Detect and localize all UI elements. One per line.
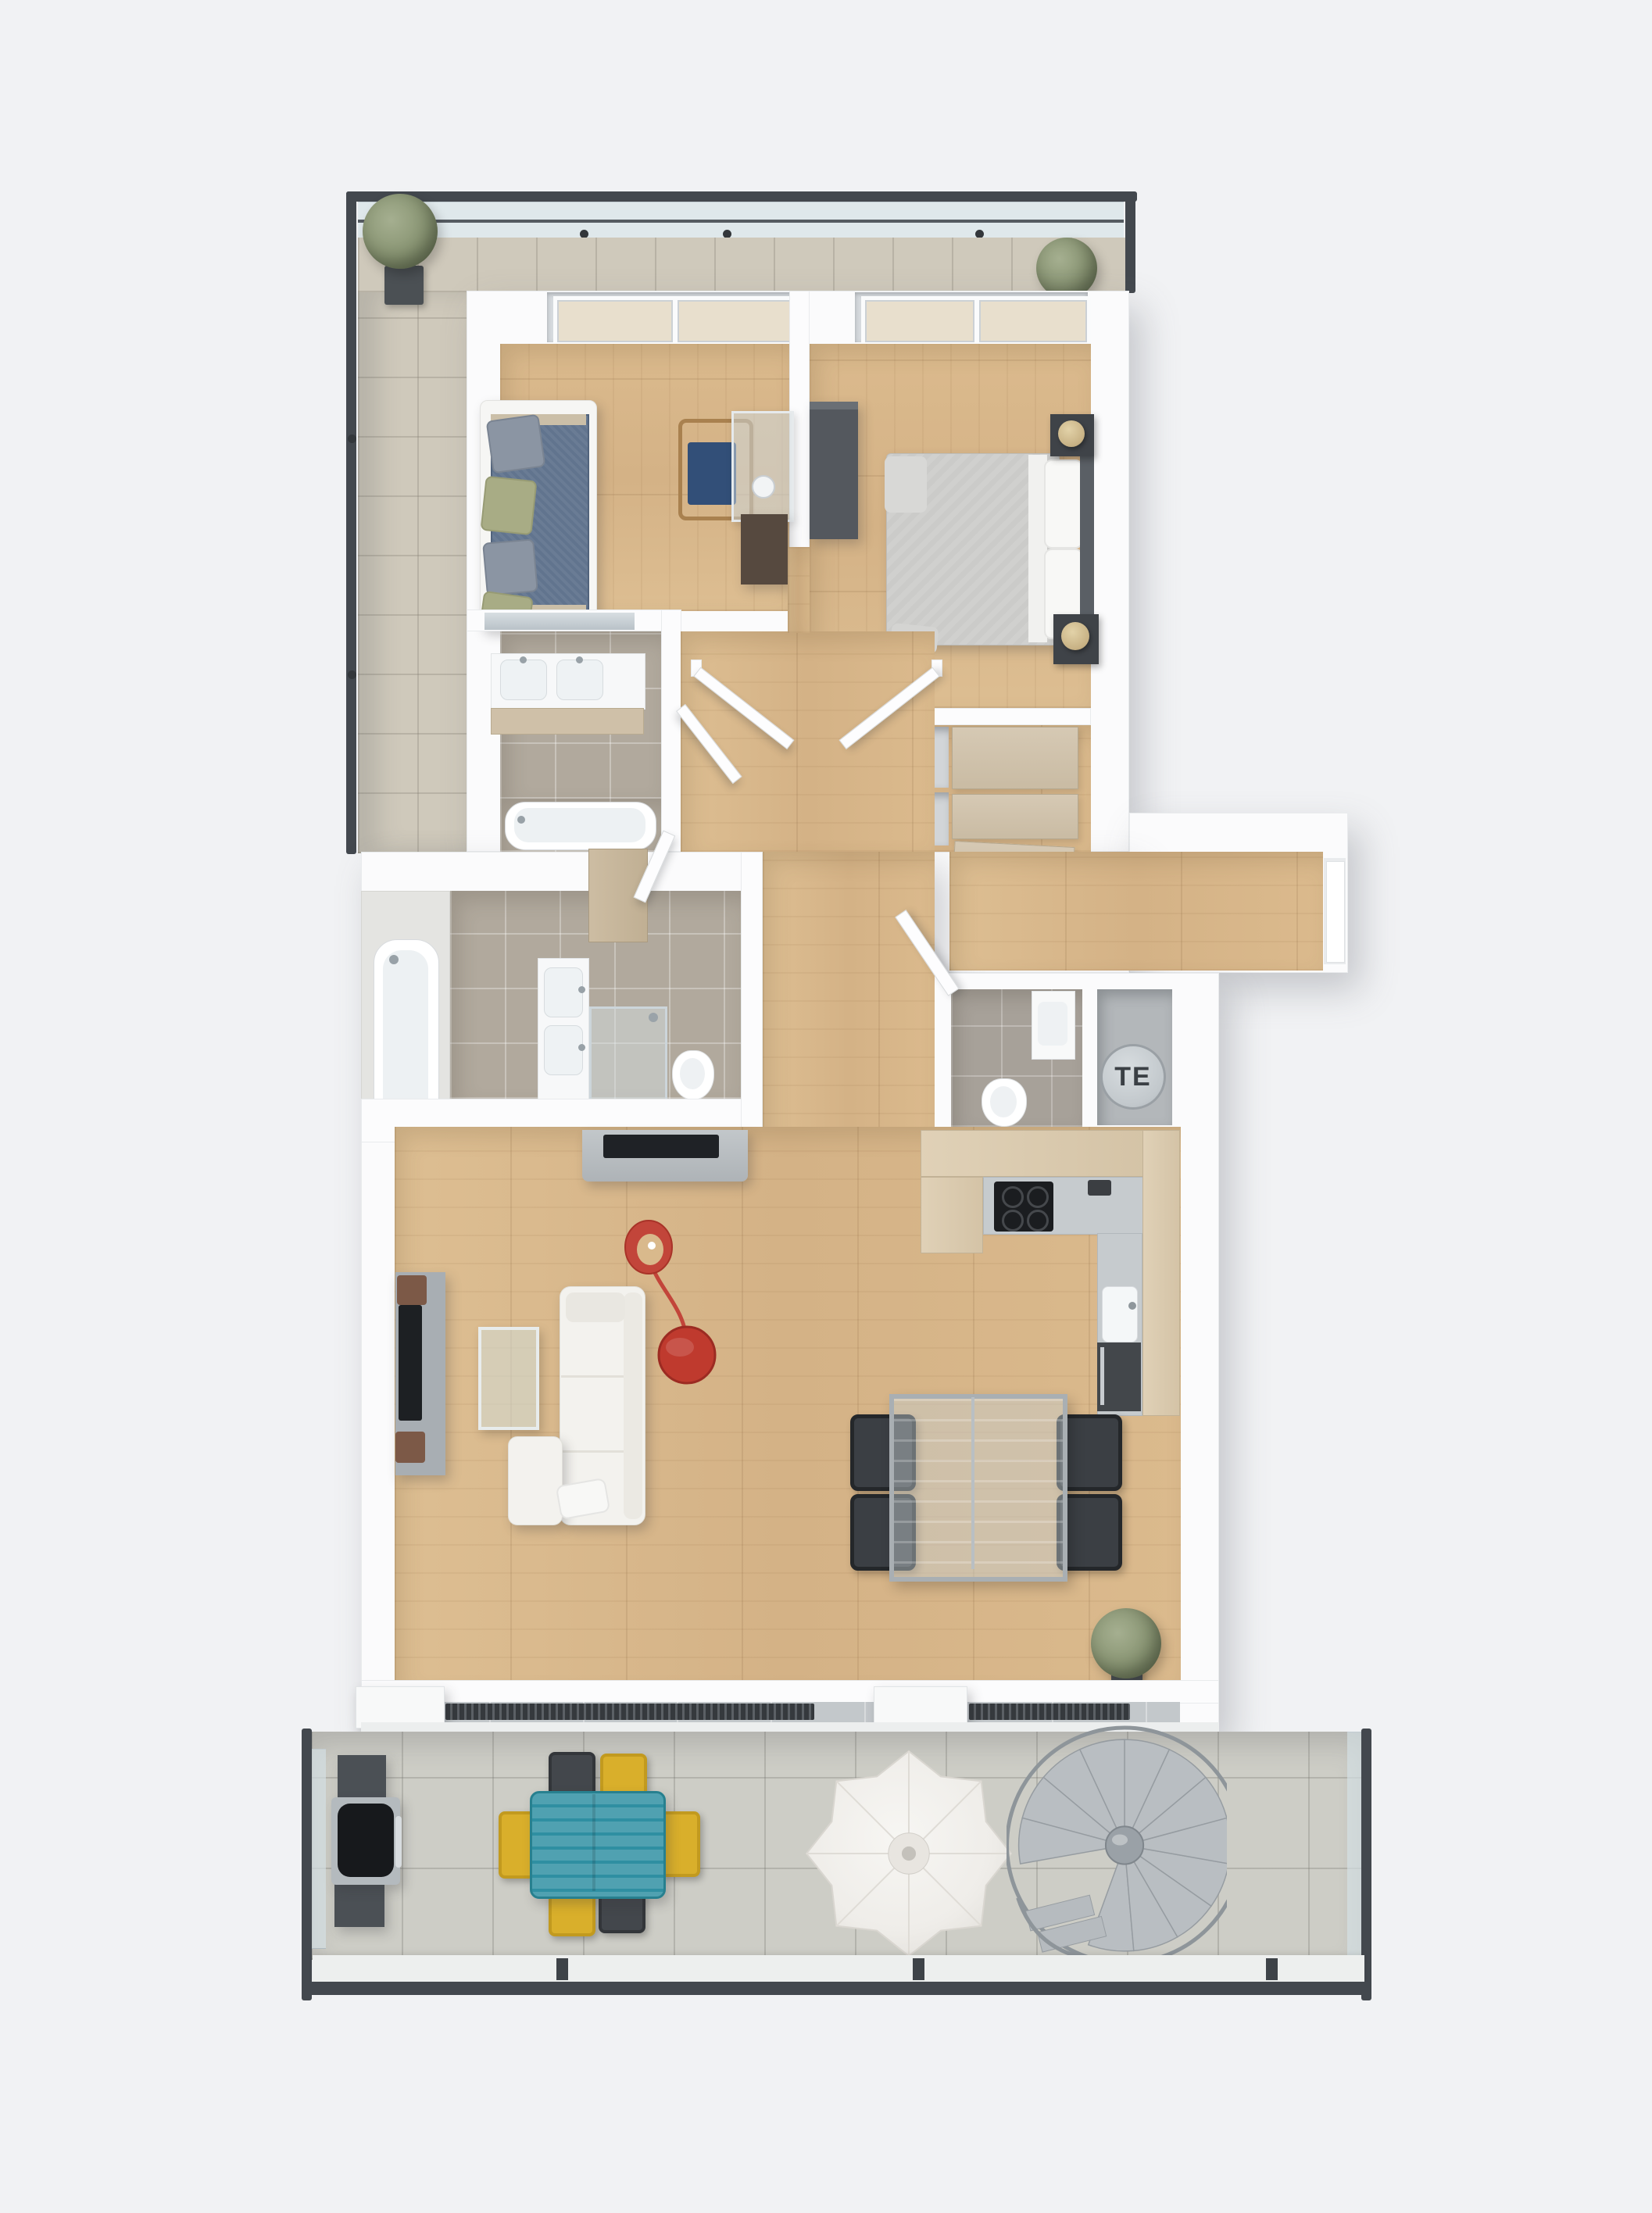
tub-faucet — [389, 955, 399, 964]
top-terrace-rail-bar — [358, 220, 1124, 223]
technical-shaft: TE — [1100, 1044, 1166, 1110]
sofa-chaise — [508, 1436, 563, 1525]
red-arc-floor-lamp — [611, 1214, 728, 1394]
outdoor-table — [530, 1791, 666, 1899]
bed-blanket-fold — [885, 456, 927, 513]
sink-basin — [544, 967, 583, 1017]
bbq-side-shelf — [334, 1882, 384, 1927]
top-terrace-railing — [346, 191, 1137, 202]
kitchen-base-cabinet — [921, 1177, 983, 1253]
vent-grille — [445, 1704, 814, 1720]
sink-basin — [556, 660, 603, 700]
glass-desk — [731, 411, 794, 522]
kitchen-utensil — [1088, 1180, 1111, 1196]
faucet — [578, 986, 585, 993]
tub-faucet — [517, 816, 525, 824]
faucet — [578, 1044, 585, 1051]
speaker — [397, 1275, 427, 1305]
oven-handle — [1100, 1347, 1104, 1405]
sofa-seam — [561, 1450, 624, 1453]
spiral-staircase — [1007, 1724, 1227, 1971]
planter-pot — [384, 266, 424, 305]
central-hall-floor — [763, 852, 935, 1142]
terrace-glass-left — [312, 1749, 326, 1949]
ensuite-bathtub-inner — [514, 808, 645, 842]
speaker — [395, 1432, 425, 1463]
table-lamp — [1061, 622, 1089, 650]
tv-flat — [603, 1135, 719, 1158]
railing-knob — [348, 434, 356, 443]
ensuite-mirror — [485, 613, 635, 630]
desk-lamp — [752, 475, 775, 499]
terrace-sill — [313, 1955, 1364, 1983]
bed-pillow — [1044, 459, 1083, 549]
kitchen-faucet — [1128, 1302, 1136, 1310]
vent-grille — [969, 1704, 1130, 1720]
outdoor-table-seam — [592, 1794, 595, 1891]
tv-on-sideboard — [399, 1305, 422, 1421]
top-terrace-railing-right — [1125, 191, 1135, 293]
cooktop-burner — [1002, 1186, 1024, 1208]
railing-post — [1266, 1958, 1278, 1980]
living-south-wall — [361, 1680, 1219, 1704]
cooktop-burner — [1027, 1186, 1049, 1208]
top-terrace-floor — [358, 238, 1125, 292]
potted-plant — [363, 194, 438, 269]
faucet — [520, 656, 527, 663]
table-lamp — [1058, 420, 1085, 447]
main-bathtub-inner — [383, 950, 428, 1122]
bbq-grill-lid — [338, 1804, 394, 1877]
cooktop-burner — [1027, 1210, 1049, 1232]
coffee-table — [478, 1327, 539, 1430]
side-balcony-railing — [346, 191, 356, 854]
desk-cabinet — [741, 514, 788, 585]
sliding-wardrobe — [952, 727, 1078, 789]
railing-knob — [348, 670, 356, 679]
bedroom-dresser — [810, 402, 858, 539]
side-balcony-floor — [358, 292, 467, 853]
hallway-floor — [681, 631, 935, 852]
kitchen-tall-cabinets — [1142, 1130, 1180, 1416]
shower-head — [649, 1013, 658, 1022]
terrace-railing-left — [302, 1729, 312, 2000]
bbq-handle — [395, 1816, 402, 1868]
technical-shaft-label: TE — [1114, 1062, 1151, 1092]
bathroom-hall-wall — [741, 852, 763, 1142]
cooktop-burner — [1002, 1210, 1024, 1232]
kitchen-wall-cabinets — [921, 1130, 1149, 1177]
ensuite-hall-wall — [661, 610, 681, 852]
pillow — [486, 414, 546, 474]
floor-plan-render: TE — [0, 0, 1652, 2213]
entrance-door — [1326, 861, 1345, 963]
sliding-wardrobe — [952, 794, 1078, 839]
office-window — [553, 296, 677, 346]
railing-post — [913, 1958, 924, 1980]
toilet-seat — [680, 1058, 705, 1089]
pillow — [482, 538, 538, 595]
kitchen-sink — [1102, 1286, 1138, 1342]
doorway-patch — [788, 547, 810, 633]
ensuite-vanity-drawers — [491, 708, 644, 735]
faucet — [576, 656, 583, 663]
potted-plant — [1036, 238, 1097, 299]
railing-post — [556, 1958, 568, 1980]
terrace-glass-right — [1347, 1732, 1361, 1968]
sink-basin — [500, 660, 547, 700]
dining-table — [889, 1394, 1067, 1582]
parasol — [803, 1735, 1014, 1972]
wc-washbasin-bowl — [1038, 1002, 1067, 1046]
bedroom-window — [975, 296, 1091, 346]
dining-table-seam — [971, 1397, 974, 1569]
living-room-plant — [1091, 1608, 1161, 1679]
bbq-side-shelf — [338, 1755, 386, 1800]
entry-corridor-floor — [949, 852, 1323, 971]
wooden-chair-seat — [688, 442, 736, 505]
bedroom-window — [861, 296, 978, 346]
pillow — [481, 476, 538, 536]
sink-basin — [544, 1025, 583, 1075]
office-window — [674, 296, 796, 346]
toilet-seat — [990, 1086, 1017, 1117]
terrace-railing-bottom — [303, 1982, 1371, 1995]
